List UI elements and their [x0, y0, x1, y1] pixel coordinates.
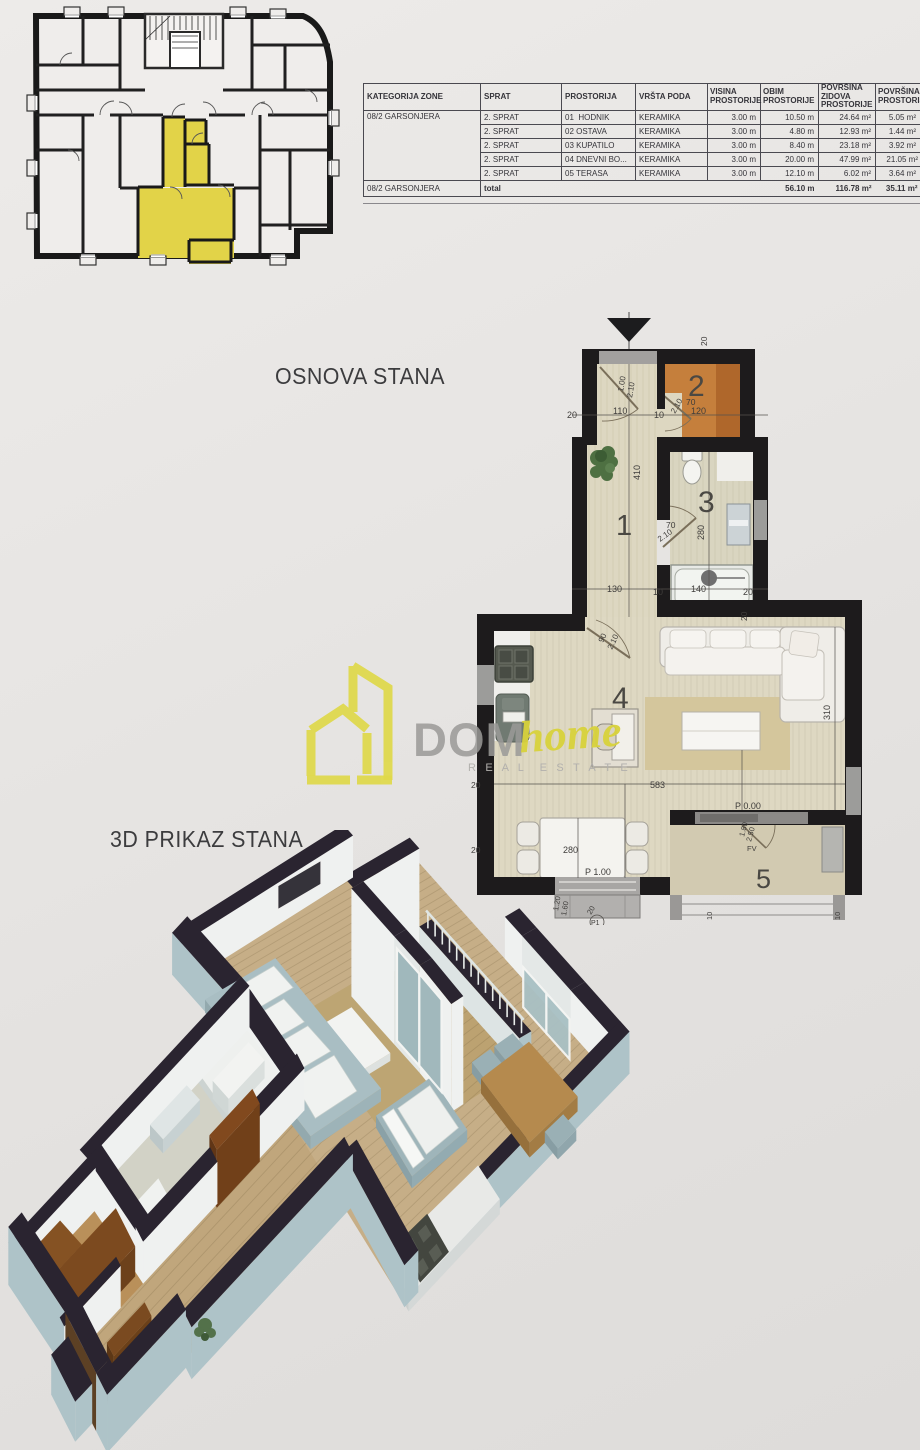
- svg-text:FV: FV: [747, 844, 757, 853]
- svg-text:110: 110: [613, 406, 627, 416]
- svg-text:410: 410: [632, 465, 642, 480]
- svg-text:280: 280: [696, 525, 706, 540]
- svg-text:20: 20: [567, 410, 577, 420]
- svg-text:P 0.00: P 0.00: [735, 801, 761, 811]
- svg-text:70: 70: [686, 397, 696, 407]
- svg-text:10: 10: [705, 912, 714, 920]
- svg-text:130: 130: [607, 584, 622, 594]
- svg-text:20: 20: [699, 336, 709, 346]
- svg-text:583: 583: [650, 780, 665, 790]
- svg-text:140: 140: [691, 584, 706, 594]
- svg-text:20: 20: [743, 587, 753, 597]
- svg-text:10: 10: [653, 587, 663, 597]
- svg-text:310: 310: [822, 705, 832, 720]
- svg-text:5: 5: [756, 864, 771, 894]
- svg-text:1: 1: [616, 510, 632, 542]
- svg-text:20: 20: [739, 611, 749, 621]
- svg-text:120: 120: [691, 406, 706, 416]
- svg-text:3: 3: [698, 486, 715, 519]
- svg-text:10: 10: [833, 912, 842, 920]
- svg-text:10: 10: [654, 410, 664, 420]
